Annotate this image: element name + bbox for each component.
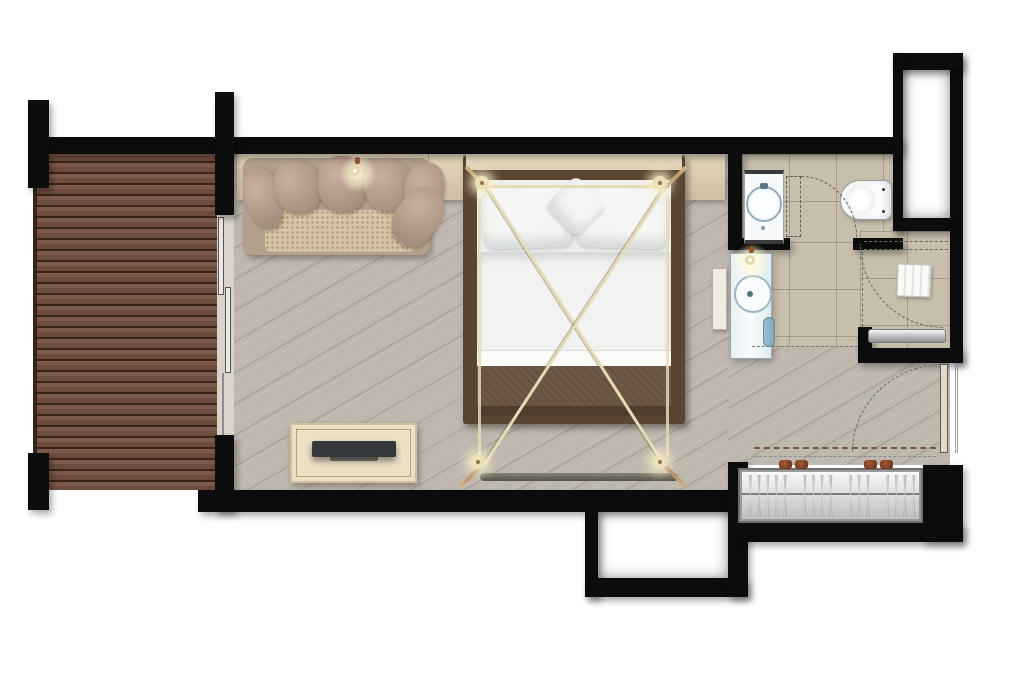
clothes-hanger: [829, 475, 834, 517]
wall-column-bottom-left: [28, 453, 49, 510]
wall-deck-divider-upper: [215, 92, 234, 215]
wall-right-upper: [950, 53, 963, 363]
entry-threshold-dashes: [754, 456, 936, 457]
clothes-hanger: [765, 475, 770, 517]
wall-wc-left: [728, 154, 742, 244]
vanity-faucet: [747, 291, 753, 297]
shower-glass-line: [864, 241, 948, 242]
clothes-hanger: [866, 475, 871, 517]
nightstand-right: [685, 154, 725, 200]
wall-vestibule-bottom: [585, 578, 748, 597]
wall-shaft-bottom: [893, 218, 950, 231]
clothes-hanger: [894, 475, 899, 517]
bath-step-dashes: [752, 346, 858, 347]
vestibule-void: [598, 510, 728, 578]
hand-towel: [763, 317, 775, 347]
wc-basin-drain: [761, 226, 765, 230]
wardrobe-knob: [864, 460, 877, 469]
bed-headboard: [466, 154, 682, 170]
clothes-hanger: [911, 475, 916, 517]
canopy-post-light: [471, 455, 485, 469]
clothes-hanger: [757, 475, 762, 517]
canopy-post-light: [653, 455, 667, 469]
canopy-foot-rail: [480, 473, 678, 481]
toilet-bolt: [882, 188, 885, 191]
canopy-post-light: [653, 176, 667, 190]
wall-sconce-sofa: [350, 166, 360, 176]
sliding-door-panel: [225, 287, 231, 373]
bed-duvet: [477, 252, 671, 366]
clothes-hanger: [748, 475, 753, 517]
canopy-side-rail: [666, 198, 669, 456]
wc-door-leaf: [786, 176, 801, 237]
clothes-hanger: [857, 475, 862, 517]
wardrobe-hangers: [748, 474, 916, 517]
wardrobe-knob: [880, 460, 893, 469]
canopy-head-rail: [487, 185, 665, 188]
clothes-hanger: [802, 475, 807, 517]
sliding-door-panel: [218, 217, 224, 295]
floor-plan: [0, 0, 1024, 682]
wall-shaft-top: [893, 53, 963, 70]
wall-shower-bottom: [858, 348, 963, 363]
wall-bottom: [198, 490, 748, 512]
wall-column-top-left: [28, 100, 49, 188]
clothes-hanger: [774, 475, 779, 517]
entry-threshold-dashes: [754, 447, 936, 449]
sliding-door-rail-line: [222, 373, 224, 435]
canopy-side-rail: [478, 198, 481, 456]
wc-washbasin-bowl: [746, 186, 782, 222]
clothes-hanger: [811, 475, 816, 517]
sconce-stem: [749, 246, 754, 253]
wall-sconce-vanity: [745, 255, 755, 265]
vanity-shelf: [712, 268, 727, 330]
clothes-hanger: [820, 475, 825, 517]
toilet-bolt: [882, 210, 885, 213]
entry-opening-edge-line: [955, 364, 958, 453]
shower-bench: [868, 329, 946, 343]
deck-floor: [37, 152, 217, 490]
wardrobe-knob: [779, 460, 792, 469]
bed-foot-edge: [477, 406, 671, 416]
wall-top: [47, 137, 903, 154]
wall-right-lower: [923, 465, 963, 542]
service-shaft-void: [903, 70, 950, 218]
deck-edge-line: [33, 152, 37, 490]
wardrobe-knob: [795, 460, 808, 469]
clothes-hanger: [903, 475, 908, 517]
clothes-hanger: [848, 475, 853, 517]
canopy-post-light: [475, 176, 489, 190]
sconce-stem: [355, 157, 360, 164]
television: [312, 441, 396, 457]
wc-basin-faucet: [760, 183, 768, 189]
clothes-hanger: [885, 475, 890, 517]
duvet-fold: [477, 350, 671, 366]
wall-shaft-left: [893, 53, 903, 231]
clothes-hanger: [783, 475, 788, 517]
